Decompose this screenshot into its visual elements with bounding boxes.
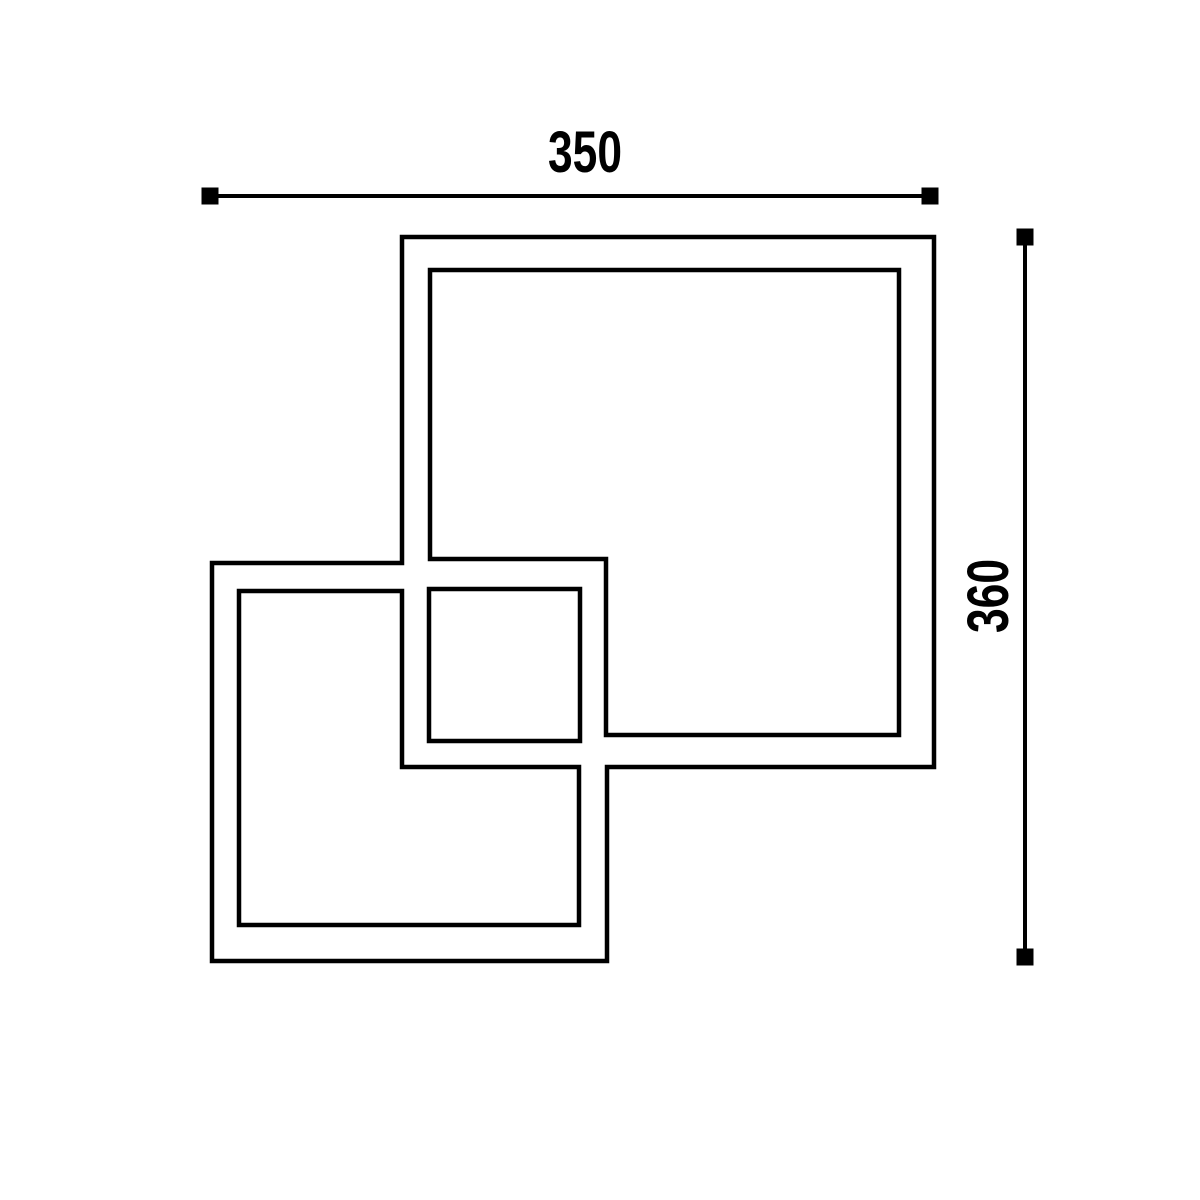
height-dimension-bottom-endpoint-marker: [1017, 949, 1034, 966]
width-dimension-left-endpoint-marker: [202, 188, 219, 205]
height-dimension-label: 360: [956, 559, 1021, 633]
drawing-canvas: 350 360: [0, 0, 1200, 1200]
width-dimension-label: 350: [548, 120, 622, 185]
technical-drawing: 350 360: [0, 0, 1200, 1200]
height-dimension-top-endpoint-marker: [1017, 229, 1034, 246]
width-dimension-right-endpoint-marker: [922, 188, 939, 205]
